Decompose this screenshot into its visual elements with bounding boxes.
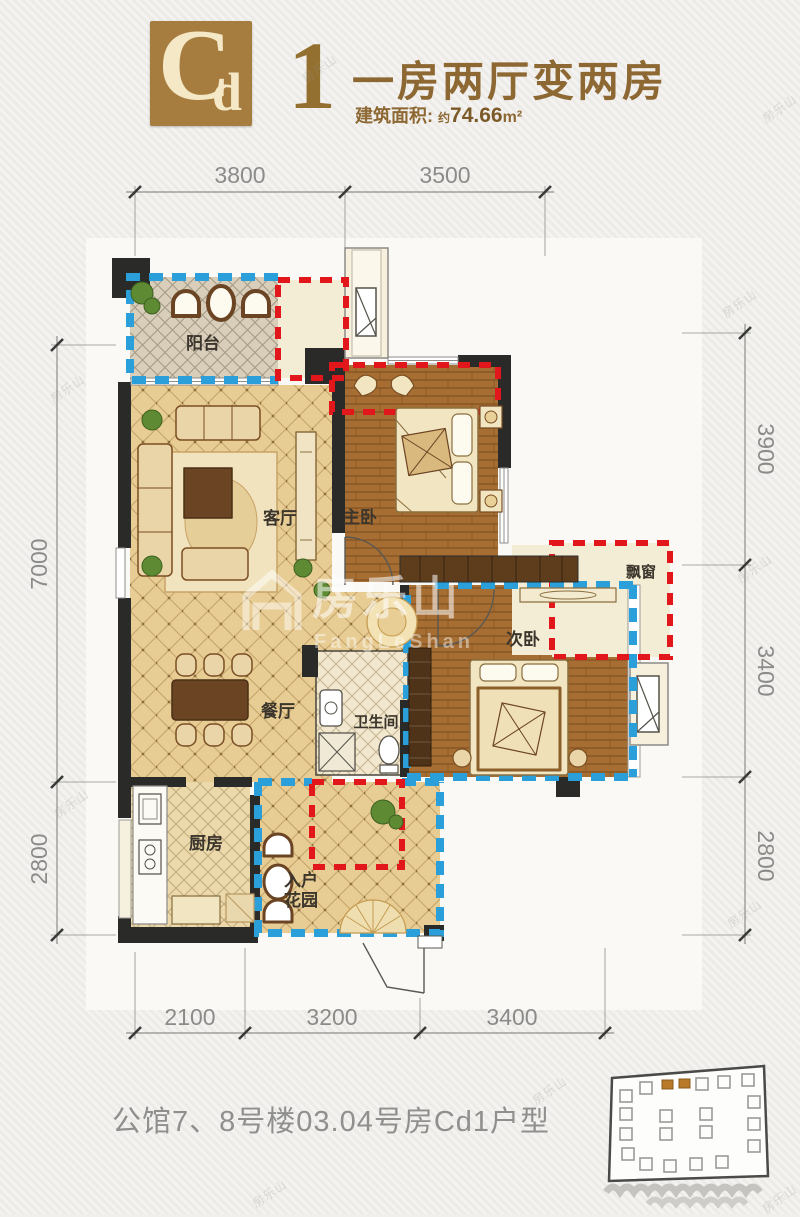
label-master: 主卧 [343,507,377,527]
floorplan-page: { "header": { "logo": { "main": "C", "su… [0,0,800,1214]
wardrobe [409,648,431,766]
kitchen-left-wall [119,820,131,918]
dim-right-3: 2800 [753,830,779,881]
balcony-arches [173,286,269,320]
dim-right-2: 3400 [753,645,779,696]
dim-bottom-2: 3200 [306,1004,357,1030]
entry-step [418,936,442,948]
label-balcony: 阳台 [186,333,220,353]
label-dining: 餐厅 [261,701,295,721]
low-cabinet [400,556,578,582]
label-bay: 飘窗 [626,563,656,581]
dining-table [172,680,248,720]
coffee-table [184,468,232,518]
site-river [606,1187,760,1192]
dim-bottom-1: 2100 [164,1004,215,1030]
second-pillow-1 [480,664,516,681]
dim-left-1: 7000 [26,538,52,589]
washbasin [320,690,342,726]
floorplan-drawing: 阳台 客厅 主卧 飘窗 次卧 餐厅 卫生间 厨房 入户 花园 [0,0,800,1214]
sofa-top [176,406,260,440]
label-bath: 卫生间 [353,713,398,731]
label-second: 次卧 [506,629,540,649]
toilet [379,736,399,764]
dim-top-1: 3800 [214,162,265,188]
kitchen-table [172,896,220,924]
master-floor-mat [402,428,452,475]
dresser [520,588,616,602]
pouf-2 [569,749,587,767]
label-kitchen: 厨房 [189,833,223,853]
label-entry-1: 入户 [284,870,318,890]
pouf-1 [453,749,471,767]
top-shaft [345,248,388,358]
master-pillow-1 [452,414,472,456]
dim-left-2: 2800 [26,833,52,884]
site-plan [606,1066,768,1204]
dim-right-1: 3900 [753,423,779,474]
second-pillow-2 [522,664,558,681]
master-pillow-2 [452,462,472,504]
plan-caption: 公馆7、8号楼03.04号房Cd1户型 [112,1098,550,1140]
living-left-window [116,548,125,598]
tv-cabinet [296,432,316,560]
dim-top-2: 3500 [419,162,470,188]
armchair-bottom [182,548,248,580]
site-river-2 [648,1200,746,1205]
label-living: 客厅 [262,508,297,528]
dim-bottom-3: 3400 [486,1004,537,1030]
label-entry-2: 花园 [284,890,318,910]
